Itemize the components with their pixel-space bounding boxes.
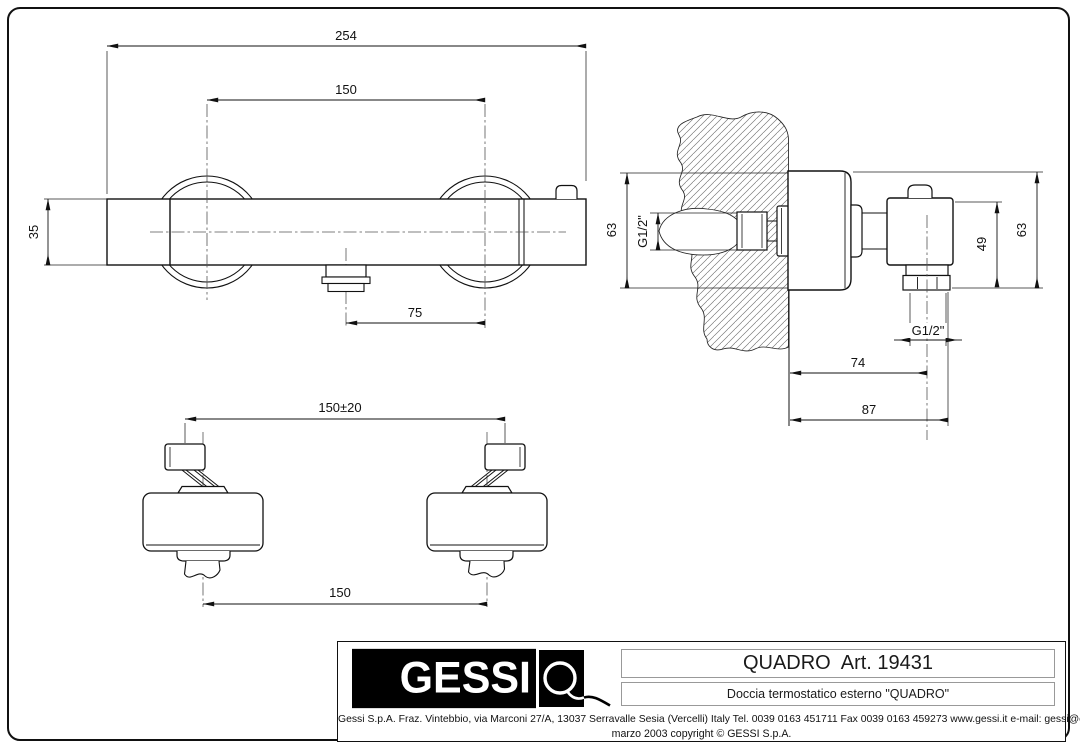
product-title: QUADRO Art. 19431 [743,652,933,675]
dim-label-63-left: 63 [604,223,619,237]
valve-button [908,185,932,198]
dim-label-150-adjustable: 150±20 [318,400,361,415]
dim-35: 35 [26,199,107,265]
dim-label-75: 75 [408,305,422,320]
dim-label-63-right: 63 [1014,223,1029,237]
company-address: Gessi S.p.A. Fraz. Vintebbio, via Marcon… [338,714,1065,725]
wall-opening [659,208,743,255]
left-union-collar [178,487,228,494]
dim-75: 75 [346,305,485,323]
dim-87: 87 [790,292,948,426]
dim-254: 254 [107,28,586,194]
dim-label-outlet-thread: G1/2" [912,323,945,338]
left-union-knob [165,444,205,470]
right-union-knob [485,444,525,470]
bar-side-body [788,171,851,290]
dim-label-49: 49 [974,237,989,251]
outlet-neck [326,265,366,277]
left-union-step [177,551,230,561]
dim-label-87: 87 [862,402,876,417]
inlet-nut [737,212,767,250]
right-union-pipe-break [469,561,505,577]
left-union-pipe-break [185,561,221,578]
dim-label-150: 150 [335,82,357,97]
gessi-logo-wordmark: GESSI [352,649,536,708]
dim-outlet-thread: G1/2" [894,293,962,346]
outlet-ring [322,277,370,284]
right-union-step [460,551,513,561]
top-button [556,186,577,200]
dim-150-adjustable: 150±20 [185,400,505,443]
front-view: 254 150 35 75 [26,28,586,328]
inlet-flange [777,206,789,256]
title-block: GESSI QUADRO Art. 19431 Doccia termostat… [337,641,1066,742]
left-union-drum [143,493,263,551]
front-flange [851,205,862,257]
dim-inlet-thread: G1/2" [635,213,658,250]
right-union-collar [462,487,512,494]
outlet-nipple [328,284,364,292]
dim-150-centers: 150 [207,82,485,100]
dim-63-left: 63 [604,173,627,288]
right-eccentric-union [427,432,547,607]
dim-label-254: 254 [335,28,357,43]
bottom-view: 150±20 150 [143,400,547,607]
side-view: 63 G1/2" 49 63 [604,112,1043,440]
dim-label-35: 35 [26,225,41,239]
gessi-q-icon [539,650,617,707]
technical-drawing: 254 150 35 75 [0,0,1080,750]
valve-body [887,198,953,265]
left-eccentric-union [143,432,263,607]
right-union-arm [470,470,508,488]
copyright-line: marzo 2003 copyright © GESSI S.p.A. [338,728,1065,740]
dim-49: 49 [952,202,1043,288]
drawing-sheet: 254 150 35 75 [0,0,1080,750]
dim-150-bottom: 150 [203,585,487,604]
outlet-nut [903,276,950,291]
product-description-box: Doccia termostatico esterno "QUADRO" [621,682,1055,706]
product-description: Doccia termostatico esterno "QUADRO" [727,687,949,701]
product-title-box: QUADRO Art. 19431 [621,649,1055,678]
dim-label-inlet-thread: G1/2" [635,215,650,248]
gessi-logo: GESSI [352,650,617,707]
left-union-arm [182,470,220,488]
right-union-drum [427,493,547,551]
dim-74: 74 [790,355,927,373]
dim-label-74: 74 [851,355,865,370]
dim-label-150-bottom: 150 [329,585,351,600]
